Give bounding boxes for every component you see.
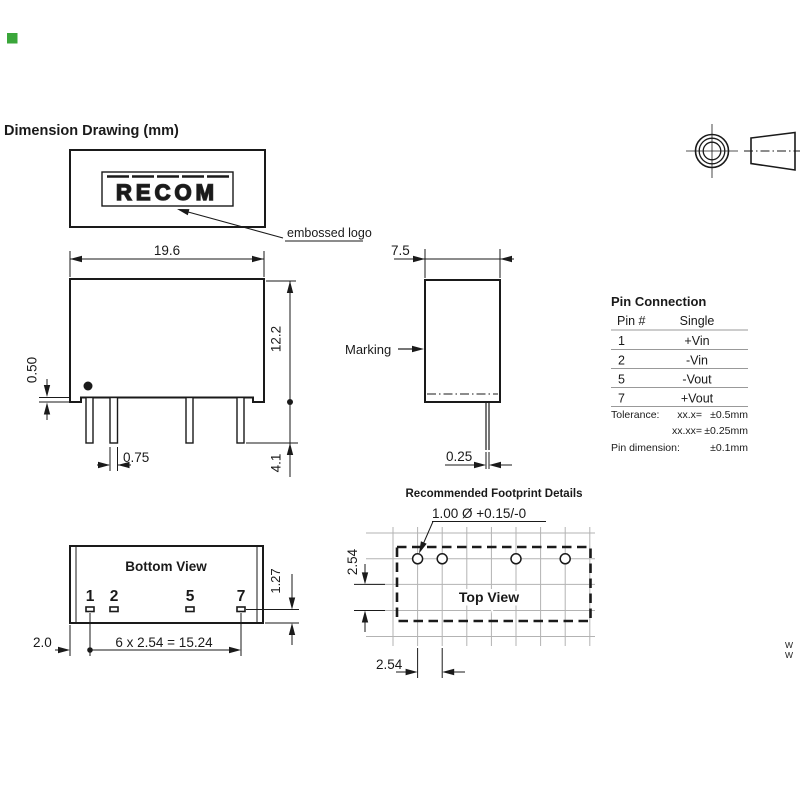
arrowhead <box>287 281 293 293</box>
arrowhead <box>70 256 82 262</box>
dimension-drawing-canvas: Dimension Drawing (mm) RECOM embossed lo… <box>0 0 800 800</box>
bottom-view: Bottom View 1 2 5 7 <box>70 546 263 623</box>
arrowhead <box>289 623 295 635</box>
green-corner-marker <box>7 33 18 44</box>
standoff-dim-label: 0.50 <box>25 357 40 383</box>
pitch-dim-label: 6 x 2.54 = 15.24 <box>115 635 213 650</box>
arrowhead <box>287 443 293 455</box>
arrowhead <box>58 647 70 653</box>
recom-logo-text: RECOM <box>116 180 218 205</box>
pin-function: +Vin <box>684 334 709 348</box>
pin-number-label: 7 <box>237 588 246 605</box>
pin-connection-title: Pin Connection <box>611 294 706 309</box>
table-rows: 1 +Vin 2 -Vin 5 -Vout 7 +Vout <box>618 334 714 406</box>
arrowhead <box>413 256 425 262</box>
pin-dimension-val: ±0.1mm <box>710 442 748 454</box>
arrowhead <box>419 541 427 553</box>
pad-dim-label: 1.27 <box>268 568 283 593</box>
front-view <box>70 279 264 443</box>
footprint-grid <box>366 527 595 646</box>
pin-number: 1 <box>618 334 625 348</box>
col-header-pin: Pin # <box>617 314 646 328</box>
arrowhead <box>362 572 368 584</box>
arrowhead <box>489 462 501 468</box>
embossed-logo-callout: embossed logo <box>177 209 372 241</box>
side-pin-extension-lines <box>486 452 489 469</box>
arrowhead <box>406 669 418 675</box>
row-pitch-dim-label: 2.54 <box>345 548 360 575</box>
embossed-logo-label: embossed logo <box>287 226 372 240</box>
case-front-outline <box>70 279 264 402</box>
dim-0-50 <box>39 379 69 420</box>
tolerance-xx-val: ±0.25mm <box>704 425 748 437</box>
pin-thickness-dim-label: 0.25 <box>446 449 472 464</box>
pin-dimension-label: Pin dimension: <box>611 442 680 454</box>
edge-dim-label: 2.0 <box>33 635 52 650</box>
side-view-pin <box>486 402 489 450</box>
pin-cross-section-detail <box>686 124 800 178</box>
table-row-separators <box>611 330 748 407</box>
pin-length-dim-label: 4.1 <box>269 454 284 473</box>
dim-7-5 <box>394 249 514 278</box>
col-pitch-dim-label: 2.54 <box>376 657 403 672</box>
arrowhead <box>98 462 110 468</box>
pin-function: +Vout <box>681 392 714 406</box>
tolerance-label: Tolerance: <box>611 409 659 421</box>
marking-callout: Marking <box>345 342 424 357</box>
bottom-view-pads <box>86 607 245 612</box>
tolerance-notes: Tolerance: xx.x= ±0.5mm xx.xx= ±0.25mm P… <box>611 409 748 454</box>
hole-dim-label: 1.00 Ø +0.15/-0 <box>432 506 526 521</box>
hole-dim-callout: 1.00 Ø +0.15/-0 <box>419 506 546 554</box>
pin-number: 7 <box>618 392 625 406</box>
arrowhead <box>229 647 241 653</box>
arrowhead <box>474 462 486 468</box>
arrowhead <box>362 611 368 623</box>
marking-label: Marking <box>345 342 391 357</box>
front-view-pins <box>86 398 244 444</box>
arrowhead <box>500 256 512 262</box>
case-side-outline <box>425 280 500 402</box>
col-header-single: Single <box>680 314 715 328</box>
arrowhead <box>289 598 295 610</box>
arrowhead <box>44 403 50 415</box>
arrowhead <box>252 256 264 262</box>
pin-number-label: 1 <box>86 588 95 605</box>
side-view <box>425 280 500 469</box>
leader-arrowhead <box>177 209 189 215</box>
case-bottom-outline <box>70 546 263 623</box>
pin-number: 2 <box>618 354 625 368</box>
pin-function: -Vout <box>682 373 712 387</box>
watermark-fragment: W W <box>785 640 793 660</box>
page-title: Dimension Drawing (mm) <box>4 123 179 139</box>
side-width-dim-label: 7.5 <box>391 243 410 258</box>
width-dim-label: 19.6 <box>154 243 180 258</box>
bottom-view-pin-numbers: 1 2 5 7 <box>86 588 246 605</box>
watermark-line: W <box>785 640 793 650</box>
watermark-line: W <box>785 650 793 660</box>
pin-number-label: 2 <box>110 588 119 605</box>
arrowhead <box>412 346 424 352</box>
height-dim-label: 12.2 <box>269 326 284 352</box>
pin-number: 5 <box>618 373 625 387</box>
pin1-marker-dot <box>84 382 93 391</box>
bottom-view-title: Bottom View <box>125 559 207 574</box>
tolerance-x-val: ±0.5mm <box>710 409 748 421</box>
datasheet-dimension-drawing-page: Dimension Drawing (mm) RECOM embossed lo… <box>0 0 800 800</box>
tolerance-x-key: xx.x= <box>677 409 702 421</box>
arrowhead <box>44 385 50 397</box>
footprint-title: Recommended Footprint Details <box>406 488 583 500</box>
pin-connection-table: Pin Connection Pin # Single 1 +Vin 2 -Vi… <box>611 294 748 454</box>
dimension-dot <box>87 647 93 653</box>
pin-number-label: 5 <box>186 588 195 605</box>
tolerance-xx-key: xx.xx= <box>672 425 702 437</box>
pin-function: -Vin <box>686 354 708 368</box>
arrowhead <box>442 669 454 675</box>
pin-width-dim-label: 0.75 <box>123 450 149 465</box>
top-view-label: Top View <box>459 589 519 605</box>
